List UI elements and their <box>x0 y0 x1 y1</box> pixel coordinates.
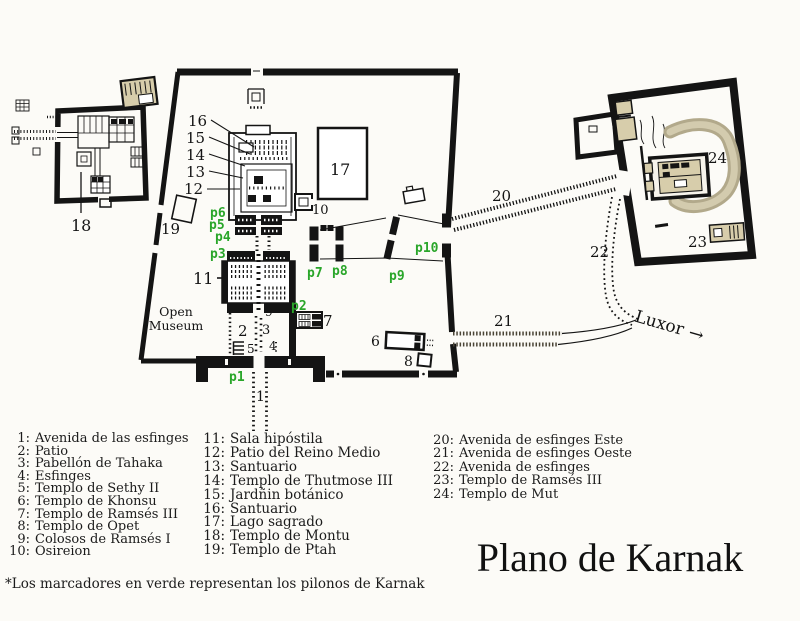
osireion <box>295 194 314 210</box>
temple-khonsu <box>386 332 435 350</box>
map-label-9: 9 <box>265 305 273 319</box>
map-label-19: 19 <box>161 220 180 238</box>
legend-footnote: *Los marcadores en verde representan los… <box>5 576 425 592</box>
legend-item-number: 20: <box>424 434 454 447</box>
legend-item: 10:Osireion <box>8 546 189 559</box>
map-label-1: 1 <box>256 389 265 405</box>
avenue-east-20 <box>452 176 620 230</box>
map-label-23: 23 <box>688 233 707 251</box>
map-label-14: 14 <box>186 146 205 164</box>
avenue-west-21 <box>453 320 636 345</box>
page-title: Plano de Karnak <box>462 534 758 581</box>
map-label-2: 2 <box>238 322 248 340</box>
hypostyle-hall <box>222 254 295 310</box>
map-label-22: 22 <box>590 243 609 261</box>
legend-item: 19:Templo de Ptah <box>197 544 393 558</box>
pylon-marker-p4: p4 <box>215 230 231 245</box>
legend-item: 20:Avenida de esfinges Este <box>424 434 632 447</box>
pylon-marker-p9: p9 <box>389 269 405 284</box>
legend-item-name: Osireion <box>35 544 91 559</box>
legend-column-1: 1:Avenida de las esfinges2:Patio3:Pabell… <box>8 433 189 559</box>
sanctuary-complex <box>229 126 296 221</box>
montu-temple-interior <box>57 116 143 193</box>
legend-item-name: Templo de Mut <box>459 487 558 502</box>
pylon-marker-p3: p3 <box>210 247 226 262</box>
legend-item-number: 22: <box>424 461 454 474</box>
pylon-1 <box>196 355 325 382</box>
map-label-11: 11 <box>193 269 213 288</box>
legend-item-name: Templo de Ptah <box>230 542 336 558</box>
map-label-4: 4 <box>269 339 277 353</box>
mut-precinct <box>576 82 752 262</box>
legend-item-number: 23: <box>424 474 454 487</box>
legend-item: 23:Templo de Ramsés III <box>424 474 632 487</box>
pylon-marker-p7: p7 <box>307 266 323 281</box>
map-label-7: 7 <box>323 312 333 330</box>
map-label-3: 3 <box>262 323 270 338</box>
luxor-arrow-icon: → <box>686 322 706 346</box>
temple-ptah <box>172 195 197 223</box>
temple-opet <box>417 353 431 366</box>
pylon-marker-p8: p8 <box>332 264 348 279</box>
legend-item: 24:Templo de Mut <box>424 488 632 501</box>
open-museum-label-line2: Museum <box>149 318 204 333</box>
map-label-24: 24 <box>708 149 727 167</box>
legend-item-number: 21: <box>424 447 454 460</box>
montu-ne-chapel <box>121 77 158 108</box>
mut-entrance-pylons <box>613 100 637 141</box>
legend-item-number: 24: <box>424 488 454 501</box>
pylon-marker-p10: p10 <box>415 241 439 256</box>
open-museum-label-line1: Open <box>159 304 193 319</box>
legend-item-number: 10: <box>8 546 30 559</box>
temple-ramses-iii <box>296 312 322 328</box>
map-label-12: 12 <box>184 180 203 198</box>
pylon-marker-p2: p2 <box>291 299 307 314</box>
montu-precinct <box>12 77 158 213</box>
legend-item-number: 19: <box>197 544 225 558</box>
east-temple <box>402 184 424 203</box>
luxor-road: Luxor → <box>632 307 706 347</box>
map-label-20: 20 <box>492 187 511 205</box>
map-label-16: 16 <box>188 112 207 130</box>
ruins-west <box>16 100 57 155</box>
map-label-6: 6 <box>371 334 380 350</box>
map-label-8: 8 <box>404 354 413 370</box>
karnak-plan-page: Luxor → <box>0 0 800 621</box>
map-label-5: 5 <box>247 342 255 356</box>
luxor-label: Luxor <box>632 307 687 340</box>
map-label-13: 13 <box>186 163 205 181</box>
legend-item: 22:Avenida de esfinges <box>424 461 632 474</box>
map-label-15: 15 <box>186 129 205 147</box>
map-label-21: 21 <box>494 312 513 330</box>
map-label-18: 18 <box>71 216 91 235</box>
legend-item: 21:Avenida de esfinges Oeste <box>424 447 632 460</box>
temple-ramses-iii-mut <box>709 223 744 242</box>
pylon-marker-p1: p1 <box>229 370 245 385</box>
temple-mut <box>644 154 710 199</box>
legend-column-2: 11:Sala hipóstila12:Patio del Reino Medi… <box>197 433 393 558</box>
legend-column-3: 20:Avenida de esfinges Este21:Avenida de… <box>424 434 632 501</box>
map-label-17: 17 <box>330 160 350 179</box>
map-label-10: 10 <box>312 203 329 218</box>
